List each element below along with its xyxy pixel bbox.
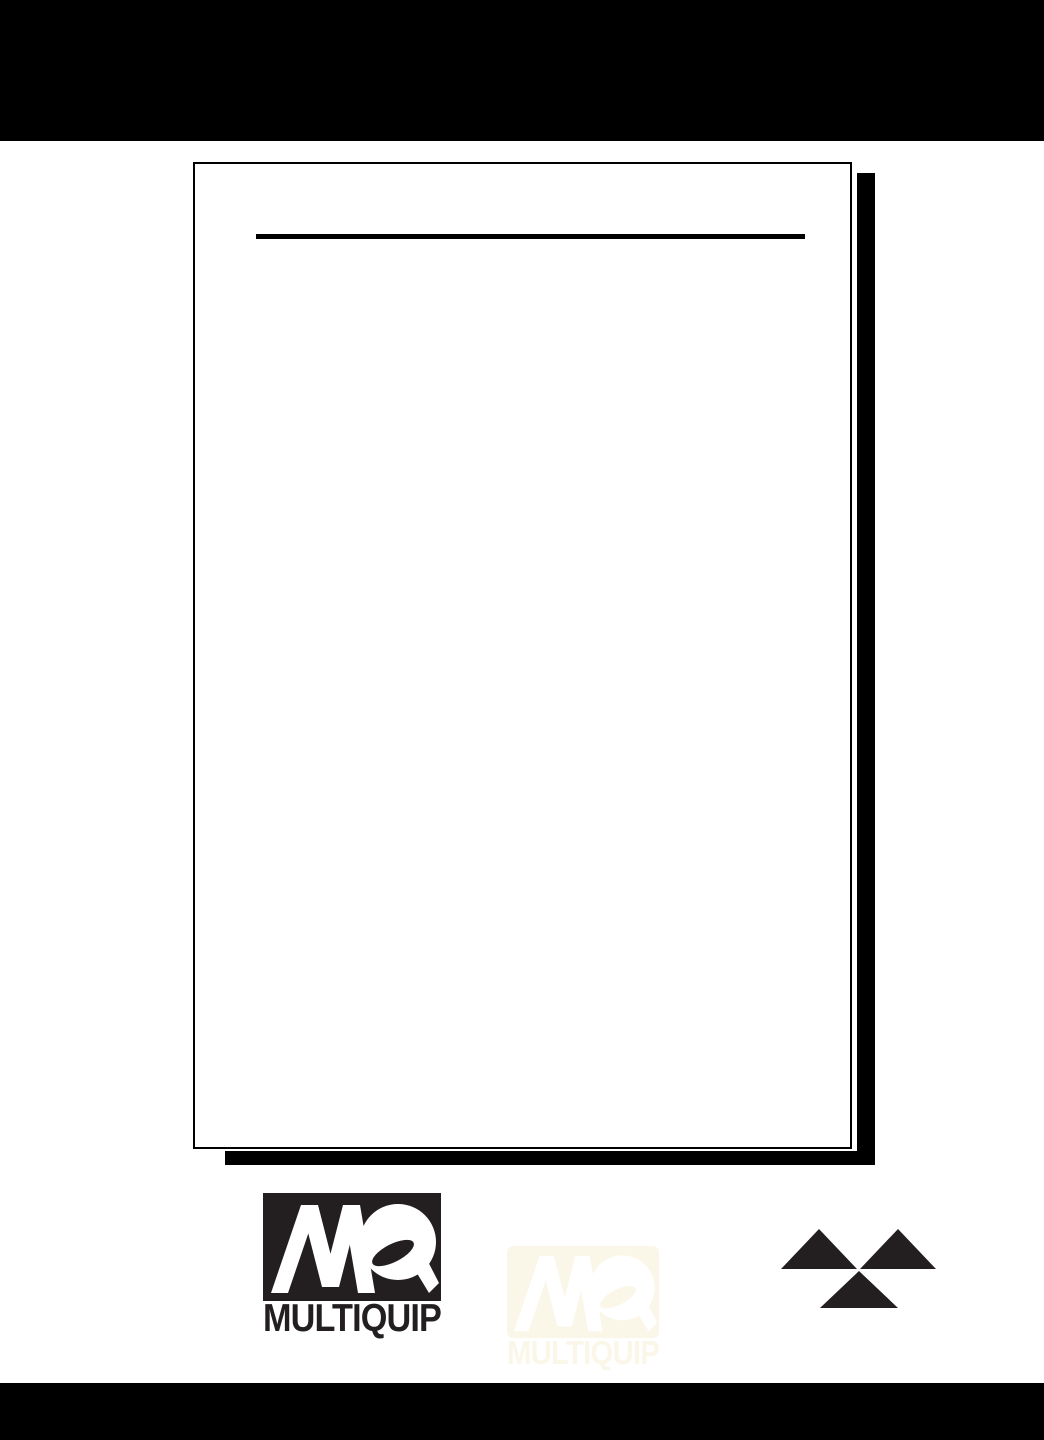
multiquip-watermark-logo: MULTIQUIP	[507, 1246, 659, 1374]
triangle-top-left	[781, 1229, 857, 1269]
triangle-bottom-center	[820, 1271, 898, 1308]
watermark-wordmark: MULTIQUIP	[507, 1335, 659, 1372]
sheet-shadow-right	[857, 173, 875, 1165]
top-black-band	[0, 0, 1044, 141]
triangle-emblem-icon	[781, 1229, 936, 1308]
cover-sheet	[193, 162, 852, 1149]
multiquip-wordmark: MULTIQUIP	[263, 1297, 441, 1340]
bottom-black-band	[0, 1383, 1044, 1440]
triangle-top-right	[860, 1229, 936, 1269]
sheet-shadow-bottom	[225, 1151, 875, 1165]
multiquip-logo: MULTIQUIP	[263, 1193, 441, 1343]
cover-page: MULTIQUIP MULTIQUIP	[0, 0, 1044, 1440]
title-divider-rule	[256, 234, 805, 239]
